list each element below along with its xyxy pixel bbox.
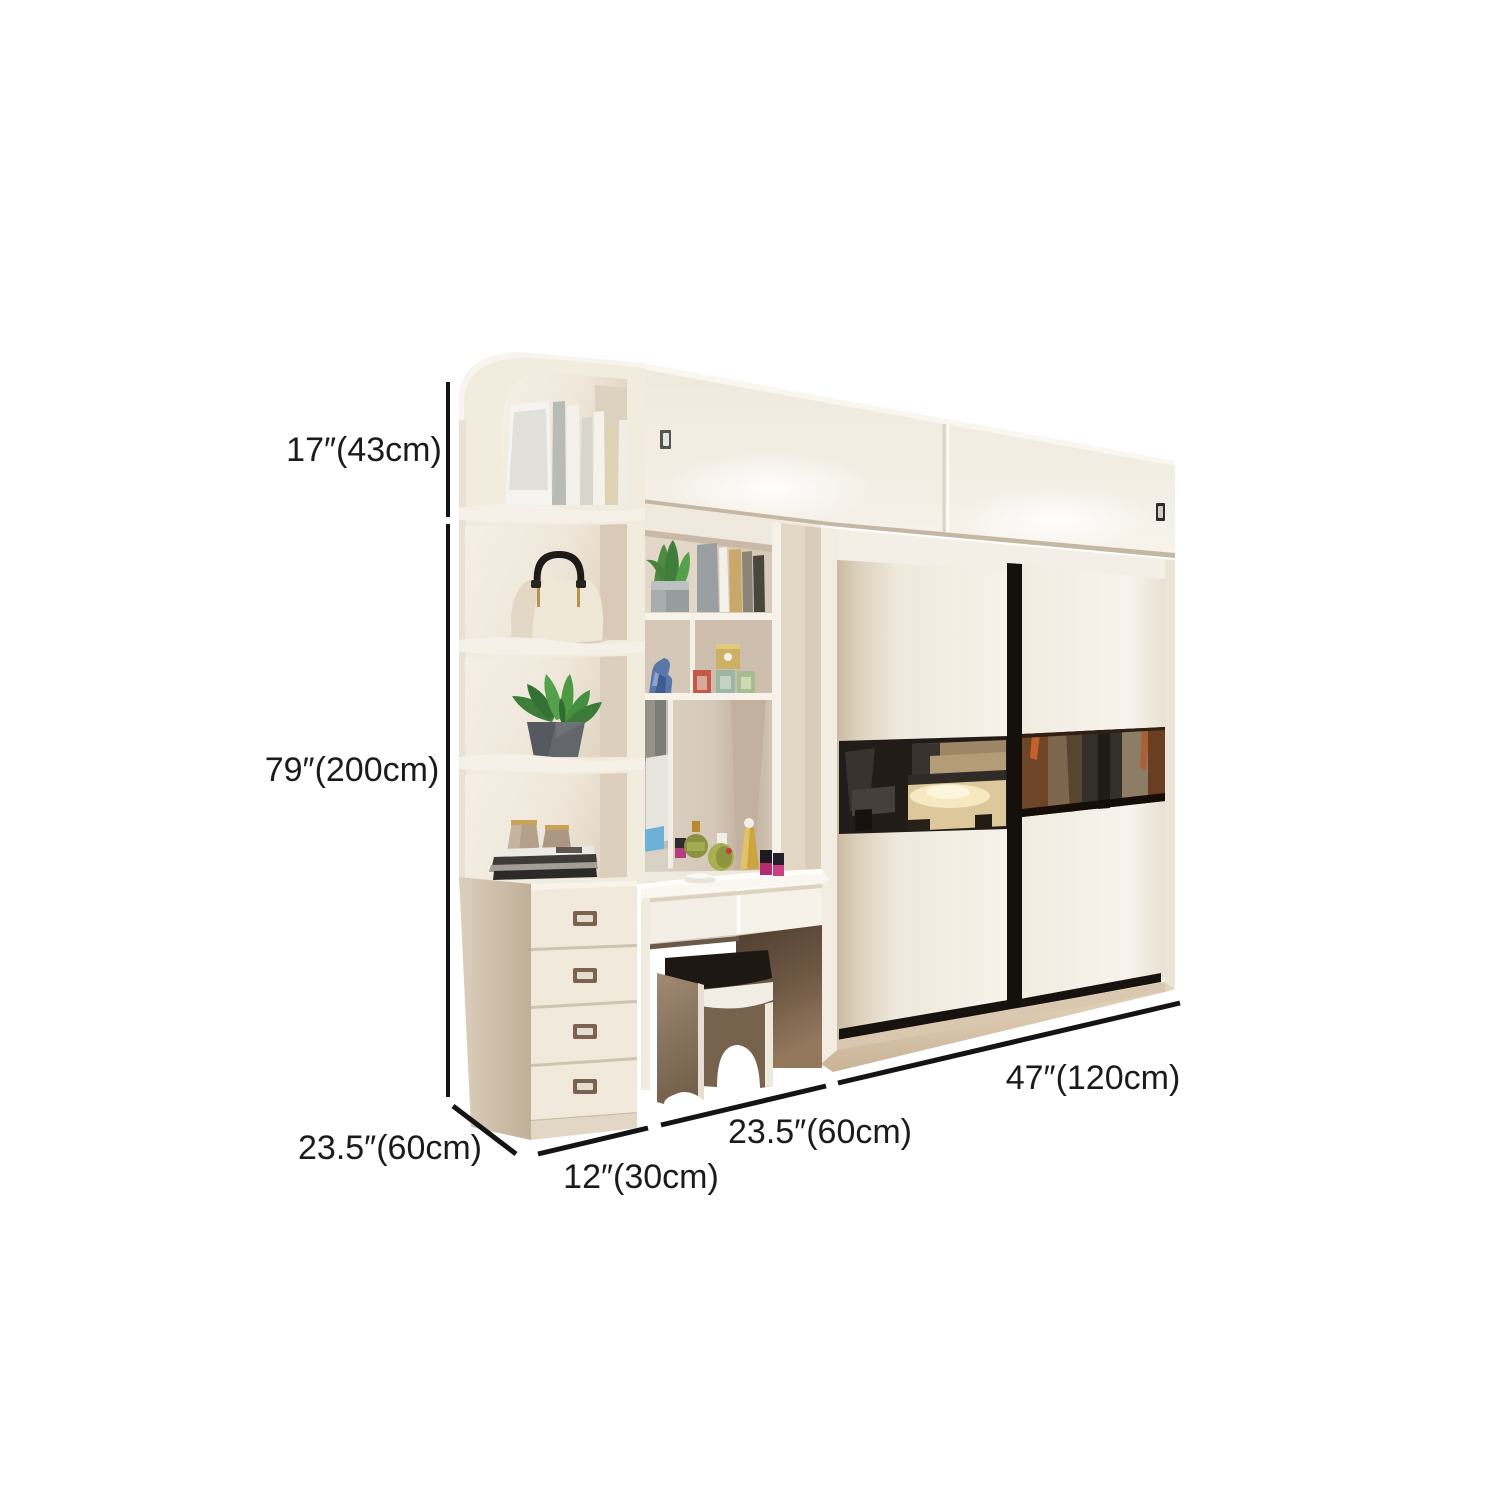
svg-text:23.5″(60cm): 23.5″(60cm) bbox=[298, 1129, 482, 1167]
svg-text:23.5″(60cm): 23.5″(60cm) bbox=[728, 1113, 912, 1151]
svg-text:79″(200cm): 79″(200cm) bbox=[265, 751, 440, 789]
svg-text:17″(43cm): 17″(43cm) bbox=[286, 431, 442, 469]
svg-text:12″(30cm): 12″(30cm) bbox=[563, 1158, 719, 1196]
svg-text:47″(120cm): 47″(120cm) bbox=[1006, 1059, 1181, 1097]
